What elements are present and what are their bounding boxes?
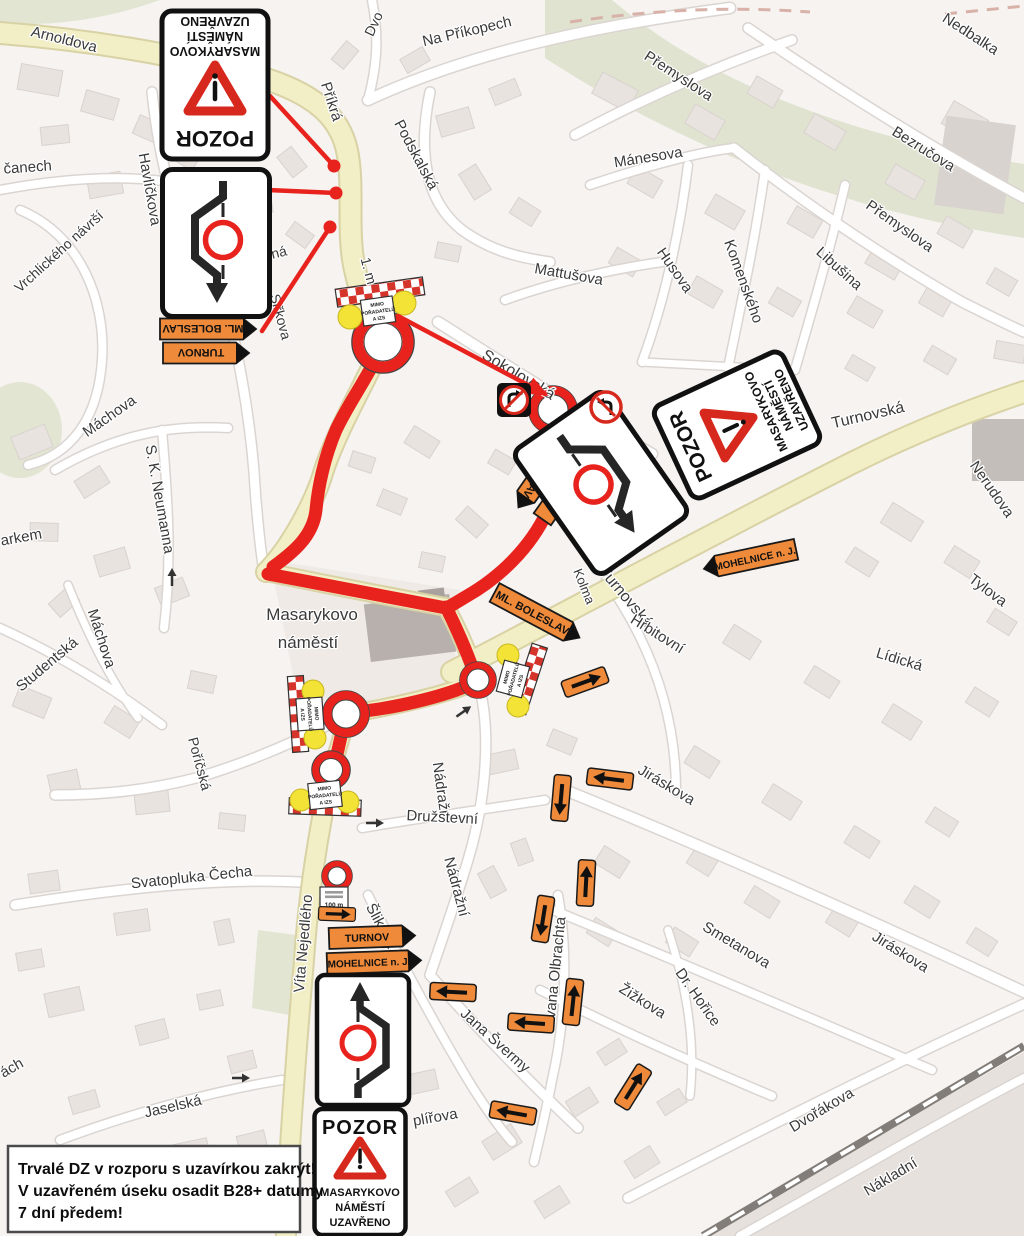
direction-sign: MOHELNICE n. J. — [327, 950, 422, 974]
building — [28, 870, 60, 894]
building — [40, 125, 70, 146]
traffic-closure-map: MIMOPOŘADATELŮA IZSMIMOPOŘADATELŮA IZSMI… — [0, 0, 1024, 1236]
sign-line: UZAVŘENO — [330, 1216, 391, 1229]
note-line: 7 dní předem! — [18, 1205, 123, 1222]
closure-exception-plate: MIMOPOŘADATELŮA IZS — [307, 780, 344, 809]
detour-arrow-icon — [507, 1013, 554, 1033]
note-line: Trvalé DZ v rozporu s uzavírkou zakrýt! — [18, 1161, 316, 1178]
plate-text: MIMO — [313, 707, 320, 721]
closure-exception-plate: MIMOPOŘADATELŮA IZS — [359, 296, 397, 327]
direction-sign: TURNOV — [329, 925, 416, 949]
detour-arrow-icon — [430, 982, 477, 1001]
no-entry-sign — [460, 662, 496, 698]
beacon-light — [338, 305, 362, 329]
street-label: Masarykovo — [266, 605, 358, 624]
roundabout-bypass-sign-top — [163, 170, 270, 317]
building — [16, 949, 45, 971]
direction-sign-label: ML. BOLESLAV — [162, 322, 244, 334]
sign-line: MASARYKOVO — [320, 1187, 400, 1199]
sign-line: NÁMĚSTÍ — [335, 1201, 385, 1214]
no-entry-sign — [323, 691, 369, 737]
sign-line: MASARYKOVO — [169, 44, 260, 58]
detour-arrow-icon — [318, 907, 355, 922]
pozor-title: POZOR — [176, 126, 254, 151]
no-left-turn-sign — [591, 392, 621, 422]
pozor-closure-sign-top: POZOR MASARYKOVO NÁMĚSTÍ UZAVŘENO — [162, 11, 268, 159]
sign-line: NÁMĚSTÍ — [186, 29, 243, 44]
direction-sign: ML. BOLESLAV — [160, 319, 256, 340]
building — [218, 813, 246, 832]
roundabout-bypass-sign-bottom — [317, 975, 409, 1105]
beacon-light — [507, 695, 529, 717]
direction-sign: TURNOV — [163, 343, 249, 364]
beacon-light — [392, 291, 416, 315]
street-label: náměstí — [278, 633, 339, 652]
pozor-closure-sign-bottom: POZOR MASARYKOVO NÁMĚSTÍ UZAVŘENO — [315, 1109, 406, 1235]
note-line: V uzavřeném úseku osadit B28+ datumy — [18, 1183, 324, 1200]
pozor-title: POZOR — [322, 1117, 398, 1139]
plate-text: A IZS — [299, 708, 306, 722]
note-box: Trvalé DZ v rozporu s uzavírkou zakrýt! … — [8, 1146, 324, 1232]
detour-arrow-icon — [551, 774, 572, 821]
street-label: čanech — [3, 157, 52, 177]
direction-sign-label: TURNOV — [177, 346, 224, 358]
no-right-turn-sign — [497, 383, 531, 417]
detour-arrow-icon — [576, 860, 595, 907]
direction-sign-label: TURNOV — [345, 931, 390, 945]
closure-exception-plate: MIMOPOŘADATELŮA IZS — [296, 696, 324, 732]
building — [114, 909, 151, 936]
sign-line: UZAVŘENO — [180, 14, 249, 29]
